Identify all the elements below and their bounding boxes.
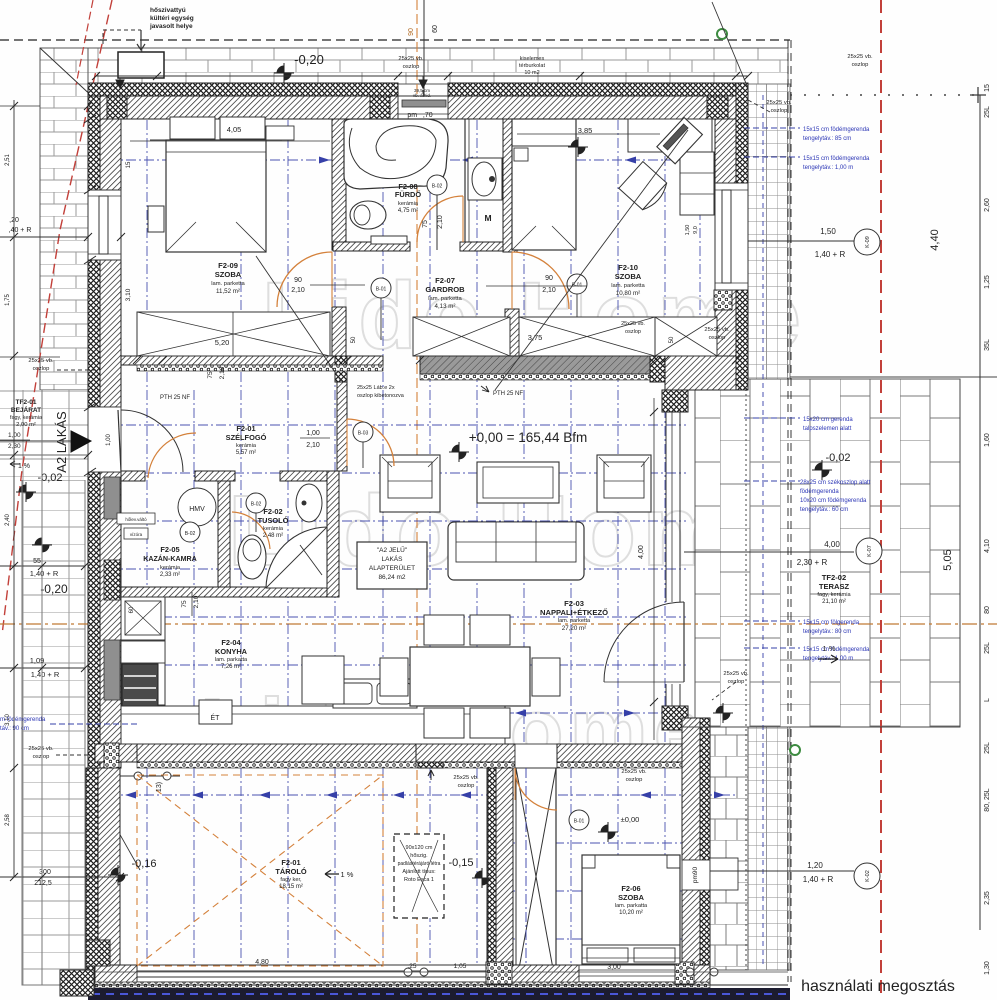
svg-text:2,33 m²: 2,33 m² <box>160 572 180 578</box>
svg-text:55: 55 <box>33 558 41 565</box>
svg-text:-0,16: -0,16 <box>131 858 156 870</box>
svg-text:kerámia: kerámia <box>236 443 257 449</box>
svg-text:BEJÁRAT: BEJÁRAT <box>11 405 41 414</box>
svg-text:1,50: 1,50 <box>820 227 836 236</box>
svg-text:5,57 m²: 5,57 m² <box>236 450 256 456</box>
svg-text:SZÉLFOGÓ: SZÉLFOGÓ <box>226 433 267 442</box>
svg-text:1,05: 1,05 <box>454 963 467 970</box>
svg-text:,20: ,20 <box>9 217 19 224</box>
svg-text:25x25 vb.: 25x25 vb. <box>28 358 54 364</box>
svg-text:F2-04: F2-04 <box>221 638 241 647</box>
svg-text:75: 75 <box>207 371 214 379</box>
svg-text:-0,02: -0,02 <box>825 452 850 464</box>
svg-text:1,50: 1,50 <box>685 225 691 236</box>
svg-text:F2-09: F2-09 <box>218 261 238 270</box>
svg-text:1,40 + R: 1,40 + R <box>815 250 846 259</box>
svg-text:F2-05: F2-05 <box>160 545 179 554</box>
svg-text:M: M <box>484 213 491 223</box>
svg-text:fagy, kerámia: fagy, kerámia <box>10 415 42 421</box>
svg-text:4,13 m²: 4,13 m² <box>435 303 456 310</box>
svg-text:B-02: B-02 <box>185 531 196 537</box>
svg-text:oszlop kibetonozva: oszlop kibetonozva <box>357 393 405 399</box>
svg-text:hőlev.váltó: hőlev.váltó <box>125 517 147 522</box>
svg-text:2,51: 2,51 <box>5 154 11 166</box>
svg-text:oszlop: oszlop <box>625 329 641 335</box>
svg-text:lam. parketta: lam. parketta <box>211 281 245 287</box>
svg-text:Ajánlott típus:: Ajánlott típus: <box>402 869 436 875</box>
svg-text:1,40 + R: 1,40 + R <box>30 569 59 578</box>
svg-text:10x20 cm födémgerenda: 10x20 cm födémgerenda <box>800 498 867 504</box>
svg-text:K-07: K-07 <box>867 545 873 557</box>
svg-text:25L: 25L <box>984 642 991 654</box>
svg-text:B-01: B-01 <box>376 287 387 293</box>
svg-text:60: 60 <box>129 606 135 613</box>
svg-text:pm ,70: pm ,70 <box>407 112 432 119</box>
svg-text:86,24 m2: 86,24 m2 <box>378 574 405 581</box>
svg-text:födémgerenda: födémgerenda <box>800 489 839 495</box>
svg-text:KAZÁN-KAMRA: KAZÁN-KAMRA <box>143 554 197 563</box>
svg-text:2,58: 2,58 <box>5 814 11 826</box>
svg-text:1,60: 1,60 <box>984 433 991 447</box>
svg-text:HMV: HMV <box>189 506 205 513</box>
svg-text:-0,15: -0,15 <box>448 857 473 869</box>
svg-text:4,05: 4,05 <box>227 125 242 134</box>
svg-text:kerámia: kerámia <box>398 201 419 207</box>
svg-text:15: 15 <box>126 161 132 168</box>
svg-text:lam. parkatta: lam. parkatta <box>215 657 248 663</box>
svg-text:4,00: 4,00 <box>638 545 645 559</box>
svg-text:3,10: 3,10 <box>125 288 132 301</box>
svg-text:kerámia: kerámia <box>160 565 181 571</box>
svg-text:K-09: K-09 <box>865 236 871 248</box>
svg-text:tengelytáv.: 1,00 m: tengelytáv.: 1,00 m <box>803 165 853 171</box>
svg-text:2,30: 2,30 <box>8 443 21 450</box>
svg-text:15x15 cm födémgerenda: 15x15 cm födémgerenda <box>803 156 870 162</box>
svg-text:2,10: 2,10 <box>219 366 226 379</box>
svg-text:60: 60 <box>432 25 439 33</box>
svg-text:212,5: 212,5 <box>34 880 52 887</box>
svg-text:B-01: B-01 <box>574 819 585 825</box>
svg-text:LAKÁS: LAKÁS <box>382 554 404 563</box>
svg-text:-0,20: -0,20 <box>40 582 68 596</box>
svg-text:F2-10: F2-10 <box>618 263 638 272</box>
svg-text:2,60: 2,60 <box>984 198 991 212</box>
svg-text:2,30 + R: 2,30 + R <box>797 558 828 567</box>
svg-text:TF2-02: TF2-02 <box>822 573 846 582</box>
svg-text:3,00: 3,00 <box>607 964 621 971</box>
svg-text:25x25 vb.: 25x25 vb. <box>704 327 730 333</box>
svg-text:2,10: 2,10 <box>291 287 305 294</box>
svg-text:18,15 m²: 18,15 m² <box>279 884 303 890</box>
svg-text:hőszivattyú: hőszivattyú <box>150 7 186 14</box>
svg-text:használati megosztás: használati megosztás <box>801 978 955 995</box>
svg-text:1,40 + R: 1,40 + R <box>31 670 60 679</box>
svg-text:90: 90 <box>294 277 302 284</box>
svg-text:F2-06: F2-06 <box>621 884 640 893</box>
svg-text:±0,00: ±0,00 <box>621 815 640 824</box>
svg-text:hőszig.: hőszig. <box>410 853 428 859</box>
svg-text:2,10: 2,10 <box>193 595 200 608</box>
svg-text:PTH 25 NF: PTH 25 NF <box>160 395 190 401</box>
svg-text:15x20 cm gerenda: 15x20 cm gerenda <box>803 417 853 423</box>
svg-text:K-02: K-02 <box>865 870 871 882</box>
svg-text:25x25 vb.: 25x25 vb. <box>453 775 479 781</box>
svg-text:vízóra: vízóra <box>130 532 143 537</box>
svg-text:oszlop: oszlop <box>771 108 788 114</box>
svg-text:kerámia: kerámia <box>263 526 284 532</box>
svg-text:B-01: B-01 <box>572 283 583 289</box>
svg-text:fagy ker,: fagy ker, <box>280 877 302 883</box>
svg-text:5,05: 5,05 <box>942 549 954 570</box>
svg-text:ÉT: ÉT <box>211 713 221 722</box>
svg-text:15x15 cm födémgerenda: 15x15 cm födémgerenda <box>803 127 870 133</box>
svg-text:4,10: 4,10 <box>984 539 991 553</box>
svg-text:+0,00 = 165,44 Bfm: +0,00 = 165,44 Bfm <box>469 430 588 445</box>
svg-text:90x120 cm: 90x120 cm <box>406 845 433 851</box>
svg-text:2,35: 2,35 <box>984 891 991 905</box>
svg-text:F2-02: F2-02 <box>263 507 282 516</box>
svg-text:ALAPTERÜLET: ALAPTERÜLET <box>369 564 415 572</box>
svg-text:10 m2: 10 m2 <box>524 70 539 76</box>
svg-text:L: L <box>984 698 991 702</box>
svg-text:25L: 25L <box>984 106 991 118</box>
svg-text:lam. parkatta: lam. parkatta <box>615 903 648 909</box>
svg-text:25x25 vb.: 25x25 vb. <box>28 746 54 752</box>
svg-text:1,00: 1,00 <box>306 430 320 437</box>
svg-text:80: 80 <box>984 606 991 614</box>
svg-text:2,40: 2,40 <box>5 514 11 526</box>
svg-text:15: 15 <box>984 84 991 92</box>
svg-text:35L: 35L <box>984 339 991 351</box>
svg-text:1,40 + R: 1,40 + R <box>803 875 834 884</box>
svg-text:25x25 vb.: 25x25 vb. <box>723 671 749 677</box>
svg-text:kültéri egység: kültéri egység <box>150 15 194 22</box>
svg-text:A2 LAKÁS: A2 LAKÁS <box>54 411 69 473</box>
svg-text:B-02: B-02 <box>432 184 443 190</box>
svg-text:tengelytáv.: 80 cm: tengelytáv.: 80 cm <box>803 629 851 635</box>
svg-text:GARDROB: GARDROB <box>425 285 465 294</box>
svg-text:2,48 m²: 2,48 m² <box>263 533 283 539</box>
svg-text:"A2 JELŰ": "A2 JELŰ" <box>377 545 408 554</box>
svg-text:pm90: pm90 <box>692 866 699 883</box>
svg-text:NAPPALI+ÉTKEZŐ: NAPPALI+ÉTKEZŐ <box>540 608 608 617</box>
svg-text:90: 90 <box>545 275 553 282</box>
svg-text:lam. parketta: lam. parketta <box>558 618 591 624</box>
svg-text:oszlop: oszlop <box>33 754 50 760</box>
svg-text:fagy, kerámia: fagy, kerámia <box>817 592 851 598</box>
svg-text:2,10: 2,10 <box>542 287 556 294</box>
svg-text:tengelytáv.: 85 cm: tengelytáv.: 85 cm <box>803 136 851 142</box>
svg-text:4,75 m²: 4,75 m² <box>398 208 418 214</box>
svg-text:13): 13) <box>156 782 163 792</box>
svg-text:1,25: 1,25 <box>984 275 991 289</box>
svg-text:oszlop: oszlop <box>458 783 475 789</box>
svg-text:80, 25L: 80, 25L <box>984 788 991 811</box>
svg-text:SZOBA: SZOBA <box>618 893 645 902</box>
svg-text:2,10: 2,10 <box>306 442 320 449</box>
svg-text:10,80 m²: 10,80 m² <box>616 290 640 297</box>
svg-text:KONYHA: KONYHA <box>215 647 248 656</box>
svg-text:15x15 cm fölgerenda: 15x15 cm fölgerenda <box>803 620 860 626</box>
svg-text:Roto Esca 1: Roto Esca 1 <box>404 877 434 883</box>
svg-text:25x25 vb.: 25x25 vb. <box>847 54 873 60</box>
svg-text:térburkolat: térburkolat <box>519 63 545 69</box>
svg-text:25x25 vb.: 25x25 vb. <box>398 56 424 62</box>
svg-text:B-03: B-03 <box>358 431 369 437</box>
svg-text:tengelytáv.: 60 cm: tengelytáv.: 60 cm <box>800 507 848 513</box>
svg-text:oszlop: oszlop <box>626 777 643 783</box>
svg-text:F2-01: F2-01 <box>281 858 300 867</box>
svg-text:oszlop: oszlop <box>709 335 726 341</box>
svg-text:1,00: 1,00 <box>8 432 21 439</box>
svg-text:7,26 m²: 7,26 m² <box>221 664 241 670</box>
svg-text:F2-01: F2-01 <box>236 424 255 433</box>
svg-text:TERASZ: TERASZ <box>819 582 850 591</box>
svg-text:oszlop: oszlop <box>33 366 50 372</box>
svg-text:75: 75 <box>422 220 429 228</box>
svg-text:28x25 cm székoszlop alatt: 28x25 cm székoszlop alatt <box>800 480 871 486</box>
svg-text:21,10 m²: 21,10 m² <box>822 599 846 605</box>
svg-text:TÁROLÓ: TÁROLÓ <box>275 867 306 876</box>
svg-text:,25: ,25 <box>407 963 416 970</box>
svg-text:2,10: 2,10 <box>437 215 444 229</box>
svg-text:táv.: 90 cm: táv.: 90 cm <box>0 726 29 732</box>
svg-text:9,0: 9,0 <box>693 226 699 234</box>
svg-text:15x15 cm födémgerenda: 15x15 cm födémgerenda <box>803 647 870 653</box>
svg-text:TUSOLÓ: TUSOLÓ <box>258 516 289 525</box>
svg-text:1,20: 1,20 <box>807 861 823 870</box>
svg-text:2,00 m²: 2,00 m² <box>16 422 36 428</box>
svg-text:50: 50 <box>669 336 675 343</box>
svg-text:1,30: 1,30 <box>984 961 991 975</box>
svg-text:vb. áthid.: vb. áthid. <box>413 93 431 98</box>
svg-text:kiselemes: kiselemes <box>520 56 545 62</box>
svg-text:lam. parketta: lam. parketta <box>428 296 462 302</box>
svg-text:TF2-01: TF2-01 <box>16 399 37 406</box>
svg-text:F2-07: F2-07 <box>435 276 455 285</box>
svg-text:SZOBA: SZOBA <box>615 272 642 281</box>
svg-text:25L: 25L <box>984 742 991 754</box>
svg-text:B-02: B-02 <box>251 502 262 508</box>
svg-text:1 %: 1 % <box>341 870 354 879</box>
svg-text:50: 50 <box>351 336 357 343</box>
svg-text:11,52 m²: 11,52 m² <box>216 288 240 295</box>
svg-text:25x25 Láb.e 2x: 25x25 Láb.e 2x <box>357 385 395 391</box>
svg-text:4,80: 4,80 <box>255 959 269 966</box>
svg-text:1 %: 1 % <box>823 644 836 653</box>
svg-text:-0,20: -0,20 <box>294 52 324 67</box>
svg-text:FÜRDŐ: FÜRDŐ <box>395 190 422 199</box>
svg-text:4,00: 4,00 <box>824 540 840 549</box>
svg-text:3,10: 3,10 <box>5 714 11 726</box>
svg-text:oszlop: oszlop <box>852 62 869 68</box>
svg-text:300: 300 <box>39 869 51 876</box>
svg-text:-0,02: -0,02 <box>37 472 62 484</box>
svg-text:4,40: 4,40 <box>929 229 941 250</box>
svg-text:SZOBA: SZOBA <box>215 270 242 279</box>
svg-text:27,20 m²: 27,20 m² <box>562 625 586 632</box>
svg-text:F2-03: F2-03 <box>564 599 584 608</box>
svg-text:padlástérájáró létra: padlástérájáró létra <box>398 861 441 867</box>
svg-text:75: 75 <box>181 600 188 608</box>
svg-text:5,20: 5,20 <box>215 338 230 347</box>
svg-text:25x25 vb.: 25x25 vb. <box>621 769 647 775</box>
svg-text:oszlop: oszlop <box>403 64 420 70</box>
svg-text:1,00: 1,00 <box>106 434 112 446</box>
svg-text:1,75: 1,75 <box>5 294 11 306</box>
svg-text:lam. parketta: lam. parketta <box>611 283 645 289</box>
svg-text:javasolt helye: javasolt helye <box>149 23 193 30</box>
svg-text:,40 + R: ,40 + R <box>9 227 32 234</box>
svg-text:25x25 vb.: 25x25 vb. <box>766 100 792 106</box>
svg-text:talpszelemen alatt: talpszelemen alatt <box>803 426 852 432</box>
svg-text:25x25 vb.: 25x25 vb. <box>621 321 645 327</box>
svg-text:3,75: 3,75 <box>528 333 543 342</box>
svg-text:90: 90 <box>408 28 415 36</box>
svg-text:10,20 m²: 10,20 m² <box>619 910 643 916</box>
svg-text:PTH 25 NF: PTH 25 NF <box>493 391 523 397</box>
